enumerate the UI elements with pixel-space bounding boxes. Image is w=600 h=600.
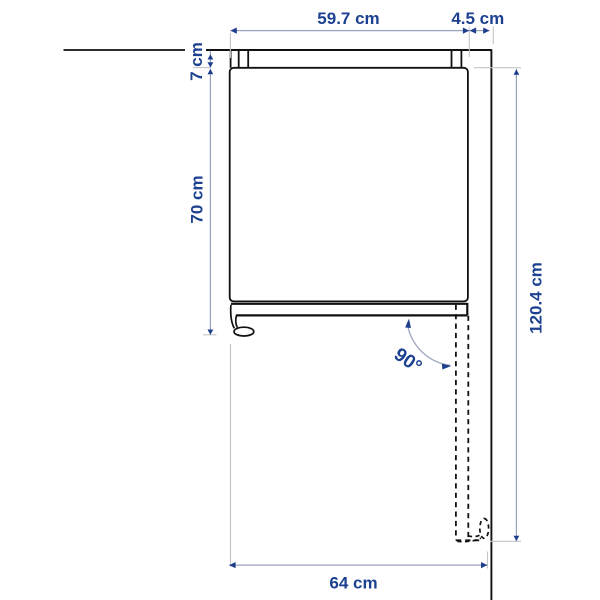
svg-text:64 cm: 64 cm — [329, 574, 377, 593]
svg-text:120.4 cm: 120.4 cm — [527, 262, 546, 334]
svg-text:7 cm: 7 cm — [187, 42, 206, 81]
svg-text:70 cm: 70 cm — [188, 175, 207, 223]
svg-text:59.7 cm: 59.7 cm — [317, 9, 379, 28]
svg-text:4.5 cm: 4.5 cm — [451, 9, 504, 28]
